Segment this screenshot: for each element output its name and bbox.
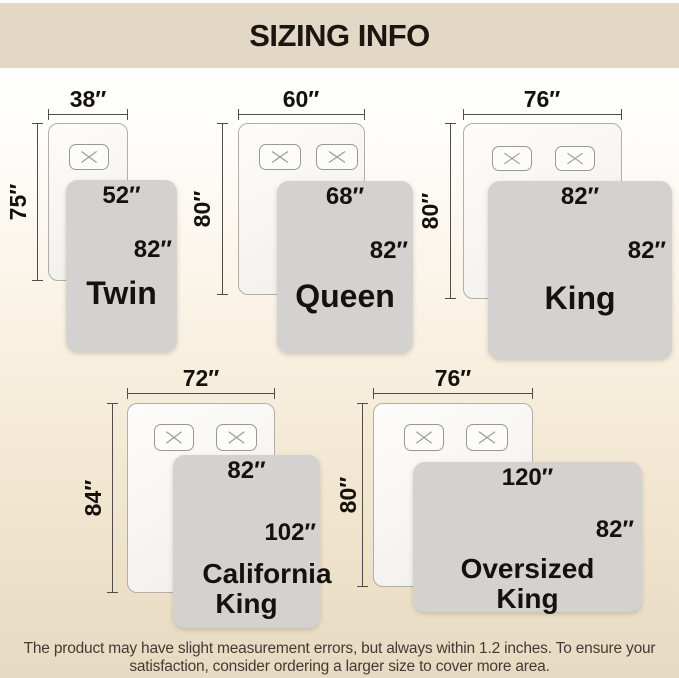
- blanket-height-label: 82″: [370, 239, 408, 263]
- mattress-width-label: 38″: [33, 88, 143, 111]
- sizing-info-infographic: SIZING INFO 38″ 75″ 52″ 82″ Twin 60″ 80″: [0, 0, 679, 678]
- size-name-label: Twin: [66, 276, 177, 311]
- page-title: SIZING INFO: [249, 18, 430, 54]
- blanket: 82″ 102″ California King: [173, 455, 320, 628]
- mattress-height-label: 75″: [5, 179, 31, 225]
- height-dimension-line: [32, 123, 43, 281]
- mattress-width-label: 72″: [146, 367, 256, 390]
- pillow-x-icon: [69, 144, 109, 170]
- mattress-width-label: 60″: [246, 88, 356, 111]
- blanket-height-label: 82″: [134, 238, 172, 262]
- blanket-width-label: 82″: [488, 185, 672, 209]
- blanket: 82″ 82″ King: [488, 181, 672, 359]
- height-dimension-line: [445, 123, 456, 299]
- blanket: 120″ 82″ Oversized King: [413, 462, 642, 612]
- pillow-x-icon: [404, 424, 444, 451]
- blanket: 68″ 82″ Queen: [277, 181, 413, 353]
- height-dimension-line: [107, 403, 118, 593]
- blanket-width-label: 52″: [66, 184, 177, 208]
- mattress-height-label: 80″: [189, 186, 215, 232]
- blanket-width-label: 68″: [277, 185, 413, 209]
- size-name-label: California King: [202, 559, 290, 619]
- size-name-label: King: [488, 281, 672, 316]
- mattress-height-label: 80″: [335, 472, 361, 518]
- blanket: 52″ 82″ Twin: [66, 180, 177, 352]
- disclaimer-line-1: The product may have slight measurement …: [0, 640, 679, 658]
- pillow-x-icon: [316, 144, 358, 170]
- blanket-height-label: 102″: [264, 521, 316, 545]
- blanket-width-label: 120″: [413, 466, 642, 490]
- blanket-height-label: 82″: [596, 518, 634, 542]
- pillow-x-icon: [216, 424, 257, 451]
- pillow-x-icon: [259, 144, 301, 170]
- mattress-width-label: 76″: [398, 367, 508, 390]
- mattress-height-label: 84″: [80, 475, 106, 521]
- pillow-x-icon: [154, 424, 194, 451]
- disclaimer-line-2: satisfaction, consider ordering a larger…: [0, 658, 679, 676]
- mattress-width-label: 76″: [487, 88, 597, 111]
- blanket-width-label: 82″: [173, 459, 320, 483]
- mattress-height-label: 80″: [417, 188, 443, 234]
- pillow-x-icon: [466, 424, 508, 451]
- pillow-x-icon: [492, 146, 532, 171]
- measurement-disclaimer: The product may have slight measurement …: [0, 640, 679, 676]
- blanket-height-label: 82″: [628, 239, 666, 263]
- size-name-label: Queen: [277, 279, 413, 314]
- size-name-label: Oversized King: [459, 554, 596, 614]
- pillow-x-icon: [555, 146, 595, 171]
- title-bar: SIZING INFO: [0, 3, 679, 68]
- height-dimension-line: [217, 123, 228, 295]
